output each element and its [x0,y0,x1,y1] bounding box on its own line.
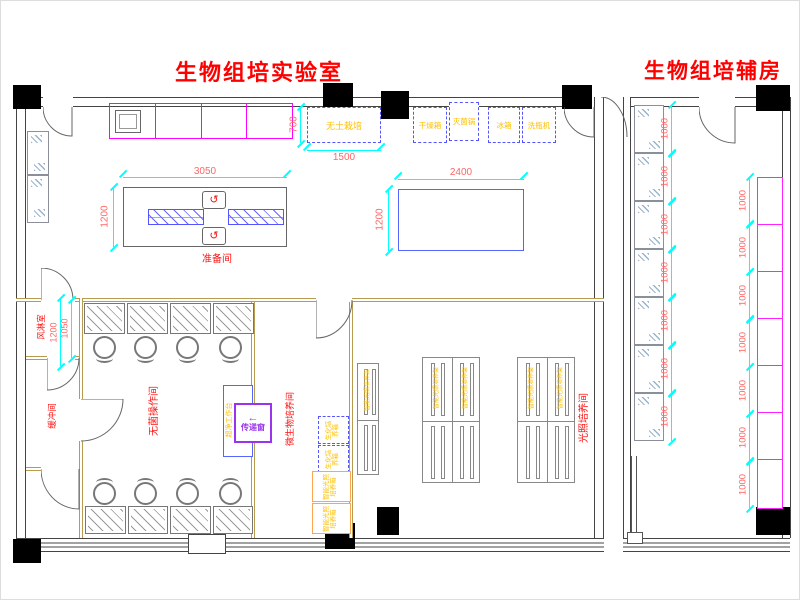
wall-shelf-cell [28,132,48,176]
faucet-icon: ↺ [209,195,218,206]
aux-wall-left [623,97,631,538]
wall-right [594,97,604,538]
light-incubator-label: 智能光照培养箱 [323,505,339,533]
sterilizer-label: 灭菌锅 [453,116,476,127]
stool [176,336,199,359]
prep-room-label: 准备间 [189,250,245,265]
rack-label: 智能光照培养架 [462,361,470,415]
floor-plan: 生物组培实验室 生物组培辅房 [0,0,800,600]
door-airshower-top [41,268,74,301]
rack-slat [565,363,569,416]
dim-line-1000 [671,105,672,153]
column-3 [381,91,409,119]
door-buffer-sterile [81,399,124,442]
pass-window-arrow-icon: ← [248,413,259,423]
dim-1000: 1000 [660,212,671,238]
door-microbe [316,300,353,339]
dim-1000: 1000 [738,235,749,261]
rack-divider [547,358,548,482]
aux-wall-right [782,97,791,538]
rack-label: 智能光照培养架 [364,363,372,417]
workbench [85,506,126,534]
shelf-pink-cell [758,225,782,272]
column-1 [13,85,41,109]
aux-wall-foot [627,532,643,544]
dim-3050: 3050 [185,166,225,177]
dim-line-2400 [398,179,524,180]
dim-1200: 1200 [100,200,111,234]
dim-1000: 1000 [738,330,749,356]
bench-row-bottom [85,506,253,534]
pass-window-label: 传递窗 [241,423,265,433]
bottle-washer-box: 洗瓶机 [522,107,556,143]
pass-window: ← 传递窗 [234,403,272,443]
column-2 [323,83,353,109]
door-top-right [564,107,595,138]
workbench [170,506,211,534]
column-7 [377,507,399,535]
soilless-culture-label: 无土栽培 [326,119,362,132]
dim-1000: 1000 [738,425,749,451]
rack-divider [452,358,453,482]
stool [134,336,157,359]
bio-incubator-label: 生化培养箱 [326,419,341,443]
rack-slat [441,363,445,416]
rack-slat [470,426,474,479]
dim-line-3050 [123,177,287,178]
rack-label: 智能光照培养架 [433,361,441,415]
aux-pink-shelf [757,177,783,509]
fridge-box: 冰箱 [488,107,520,143]
soilless-culture-box: 无土栽培 [307,107,381,143]
aux-wall-bottom-window [623,538,790,552]
dryer-label: 干燥箱 [419,120,442,131]
stool [219,482,242,505]
dim-1050: 1050 [60,314,71,344]
rack-slat [565,426,569,479]
dim-1200: 1200 [375,203,386,237]
dim-line-1000 [671,153,672,201]
dim-line-1000 [749,319,750,366]
faucet-icon: ↺ [209,231,218,242]
rack-slat [372,425,376,471]
dim-line-1000 [749,367,750,414]
column-5 [13,539,41,563]
shelf-pink-cell [758,460,782,507]
prep-table-rack [148,209,204,225]
dim-line-1200-left [113,187,114,247]
rack-divider [358,420,378,421]
dim-1200: 1200 [49,318,60,348]
shelf-pink-cell [758,178,782,225]
rack-divider [518,421,574,422]
aux-title: 生物组培辅房 [627,55,799,85]
partition-h2 [75,298,316,302]
air-shower-label: 风淋室 [35,305,47,349]
bio-incubator-label: 生化培养箱 [326,448,341,472]
door-link [601,97,628,138]
buffer-room-label: 缓冲间 [46,394,58,438]
dim-line-1000 [749,414,750,461]
magenta-bench-cell [247,104,292,138]
clean-bench-label: 超净工作台 [226,387,234,453]
wall-shelf-cell [28,176,48,220]
bench-sink [115,110,141,133]
stool [176,482,199,505]
wall-bottom-window [16,538,604,552]
dim-1000: 1000 [738,188,749,214]
dim-line-1000 [749,224,750,271]
airshower-bottom-wall-a [26,356,47,360]
dim-1000: 1000 [660,356,671,382]
rack-slat [460,426,464,479]
partition-h1 [16,298,41,302]
workbench [84,303,125,334]
wall-shelf [27,131,49,223]
column-9 [756,507,790,535]
dim-1000: 1000 [660,404,671,430]
stool [134,482,157,505]
rack-slat [536,426,540,479]
rack-divider [423,421,479,422]
dim-line-1000 [671,201,672,249]
buffer-bottom-wall [26,467,41,471]
dim-line-1000 [671,297,672,345]
rack-slat [441,426,445,479]
dim-line-700 [300,107,301,143]
bench-row-top [84,303,254,334]
dim-1000: 1000 [660,308,671,334]
column-8 [756,85,790,111]
dim-line-1200-center [388,189,389,251]
column-4 [562,85,592,109]
dim-1000: 1000 [738,472,749,498]
rack-slat [470,363,474,416]
dim-1500: 1500 [327,152,361,163]
aux-inner-wall [631,456,637,534]
dim-line-1000 [671,345,672,393]
rack-slat [372,369,376,415]
table-faucet: ↺ [202,227,226,245]
dim-line-1000 [749,461,750,508]
magenta-bench-cell [156,104,202,138]
stool [93,336,116,359]
rack-slat [555,426,559,479]
magenta-bench-cell [202,104,248,138]
dim-line-1000 [749,177,750,224]
dim-line-1000 [749,272,750,319]
rack-label: 智能光照培养架 [557,361,565,415]
dryer-box: 干燥箱 [413,107,447,143]
stool [219,336,242,359]
dim-700: 700 [289,112,300,138]
stool [93,482,116,505]
wall-left [16,97,26,538]
shelf-pink-cell [758,366,782,413]
workbench [213,506,254,534]
shelf-pink-cell [758,413,782,460]
dim-1000: 1000 [660,116,671,142]
dim-1000: 1000 [660,164,671,190]
rack-label: 智能光照培养架 [528,361,536,415]
rack-slat [536,363,540,416]
prep-table-rack [228,209,284,225]
bottom-wall-marker [188,534,226,554]
fridge-label: 冰箱 [497,120,512,131]
culture-rack-group [517,357,575,483]
microbe-room-label: 微生物培养间 [284,381,296,457]
dim-line-1050 [71,300,72,358]
workbench [127,303,168,334]
rack-slat [364,425,368,471]
rack-slat [526,426,530,479]
dim-line-1500 [307,150,381,151]
light-room-label: 光照培养间 [579,386,591,450]
dim-line-1000 [671,249,672,297]
dim-1000: 1000 [660,260,671,286]
dim-1000: 1000 [738,282,749,308]
center-table [398,189,524,251]
door-aux-entrance [699,107,736,144]
table-faucet: ↺ [202,191,226,209]
culture-rack-group [422,357,480,483]
workbench [213,303,254,334]
workbench [128,506,169,534]
partition-h3 [352,298,604,302]
dim-line-1000 [671,393,672,441]
rack-slat [431,426,435,479]
sterilizer-box: 灭菌锅 [449,102,479,141]
shelf-pink-cell [758,272,782,319]
shelf-pink-cell [758,319,782,366]
dim-1000: 1000 [738,377,749,403]
bottle-washer-label: 洗瓶机 [528,120,551,131]
workbench [170,303,211,334]
sterile-room-label: 无菌操作间 [149,376,161,446]
dim-2400: 2400 [441,167,481,178]
door-buffer-south [41,469,80,510]
light-incubator-label: 智能光照培养箱 [323,473,339,501]
